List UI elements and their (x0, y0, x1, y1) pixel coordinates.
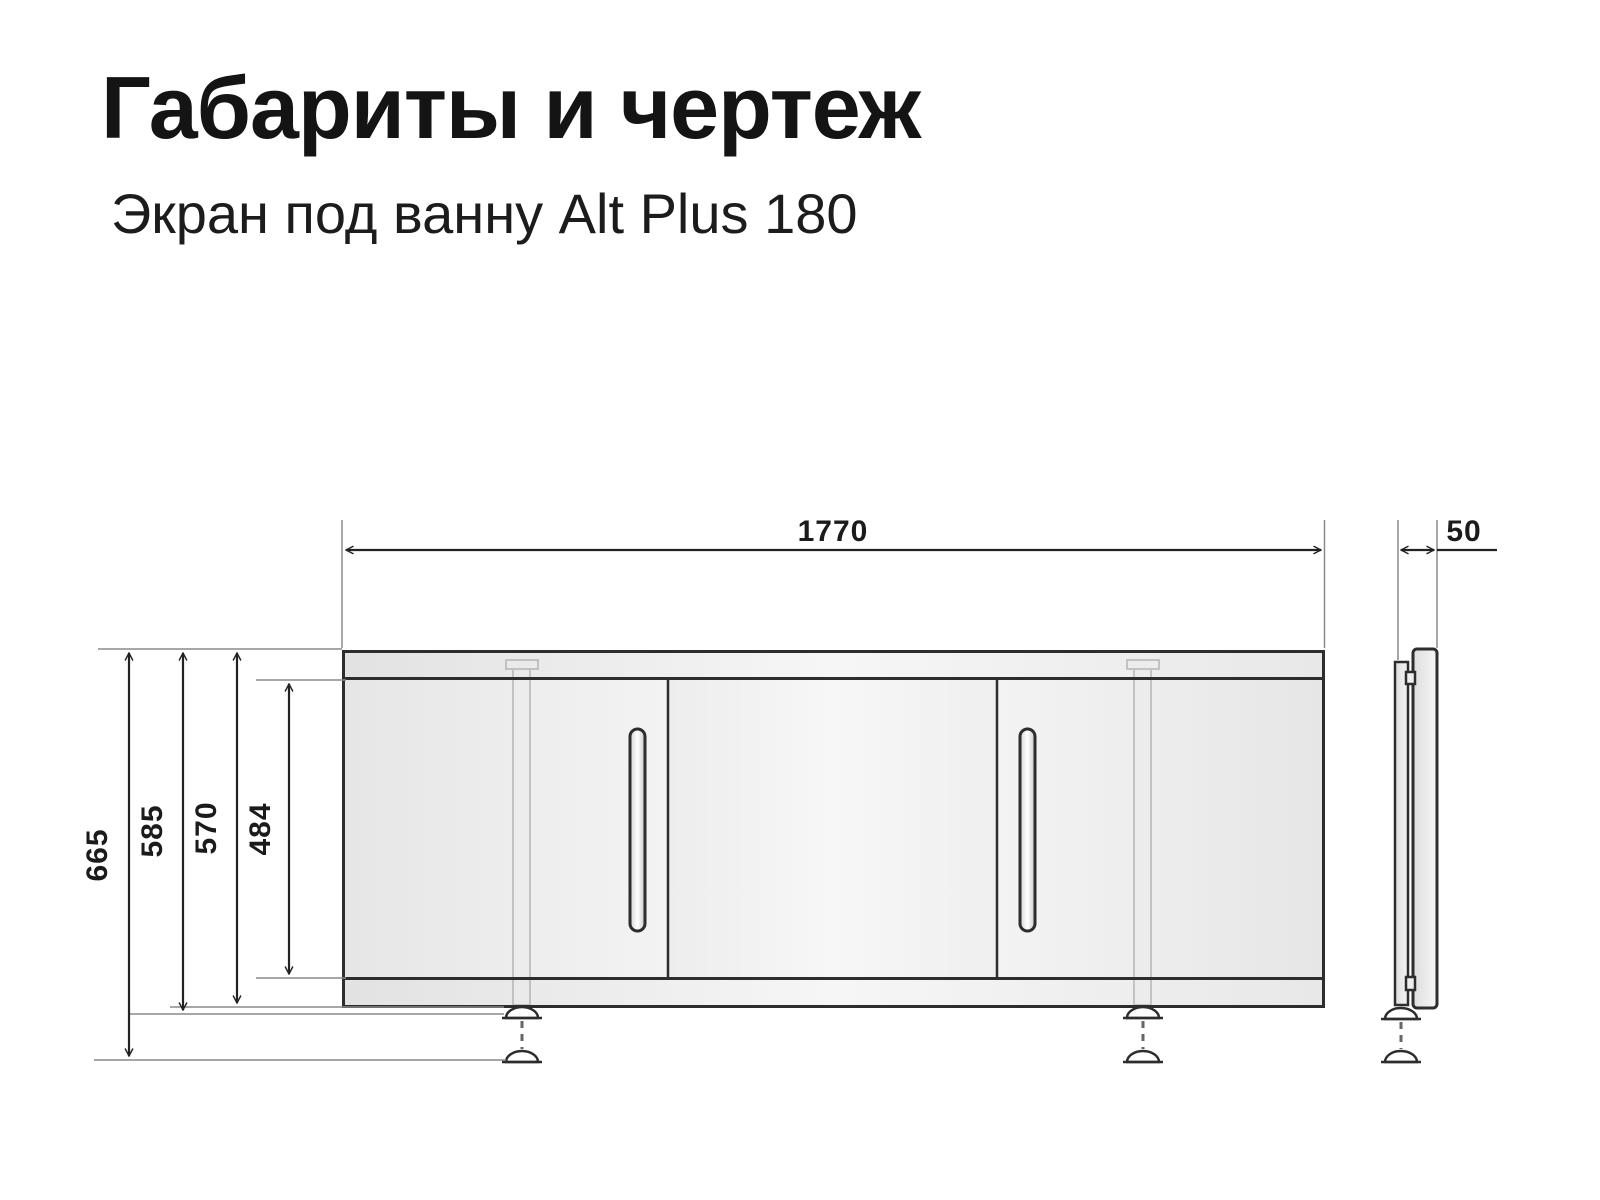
side-rail (1413, 649, 1437, 1008)
side-foot (1381, 1008, 1421, 1062)
handle-right (1020, 729, 1035, 931)
handle-left (630, 729, 645, 931)
dim-label-665: 665 (81, 828, 114, 881)
technical-drawing: 1770 50 665 585 570 484 (0, 0, 1600, 1200)
foot-left (502, 1007, 542, 1062)
front-view (342, 650, 1325, 1062)
dim-label-585: 585 (136, 804, 169, 857)
side-view (1381, 649, 1437, 1062)
bottom-rail (342, 977, 1325, 1008)
panel-center (668, 679, 997, 977)
top-rail (342, 650, 1325, 679)
side-connector-bottom (1406, 977, 1415, 990)
side-panel (1395, 662, 1408, 1005)
panel-left (342, 679, 668, 977)
dim-label-depth: 50 (1446, 515, 1481, 548)
dim-label-484: 484 (244, 802, 277, 855)
panel-right (997, 679, 1325, 977)
page: Габариты и чертеж Экран под ванну Alt Pl… (0, 0, 1600, 1200)
dim-label-width: 1770 (798, 515, 869, 548)
dim-label-570: 570 (190, 801, 223, 854)
side-connector-top (1406, 672, 1415, 684)
foot-right (1123, 1007, 1163, 1062)
